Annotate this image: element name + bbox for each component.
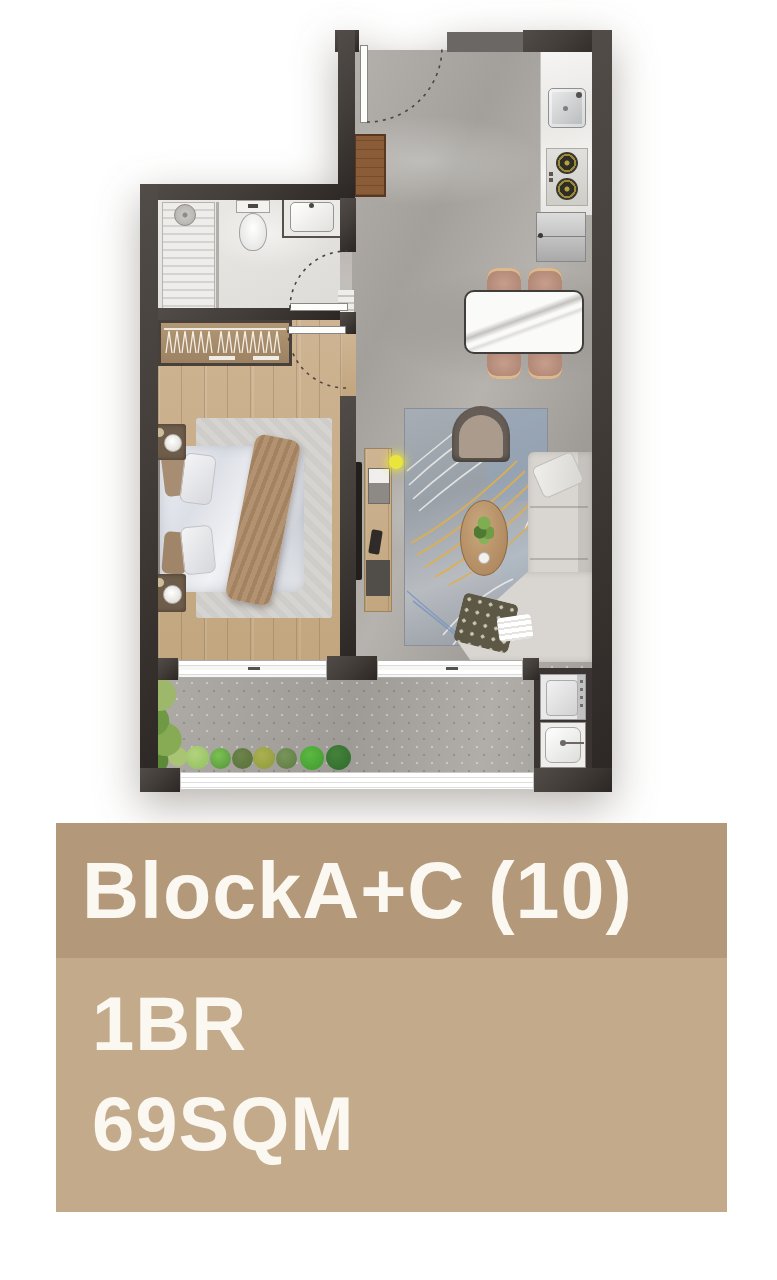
unit-bedrooms: 1BR — [92, 974, 727, 1074]
door-swing-arcs — [0, 0, 777, 800]
unit-details: 1BR 69SQM — [56, 958, 727, 1212]
unit-title-bar: BlockA+C (10) — [56, 823, 727, 958]
unit-area: 69SQM — [92, 1074, 727, 1174]
page: BlockA+C (10) 1BR 69SQM — [0, 0, 777, 1280]
unit-title: BlockA+C (10) — [82, 845, 633, 937]
unit-info-card: BlockA+C (10) 1BR 69SQM — [56, 823, 727, 1212]
